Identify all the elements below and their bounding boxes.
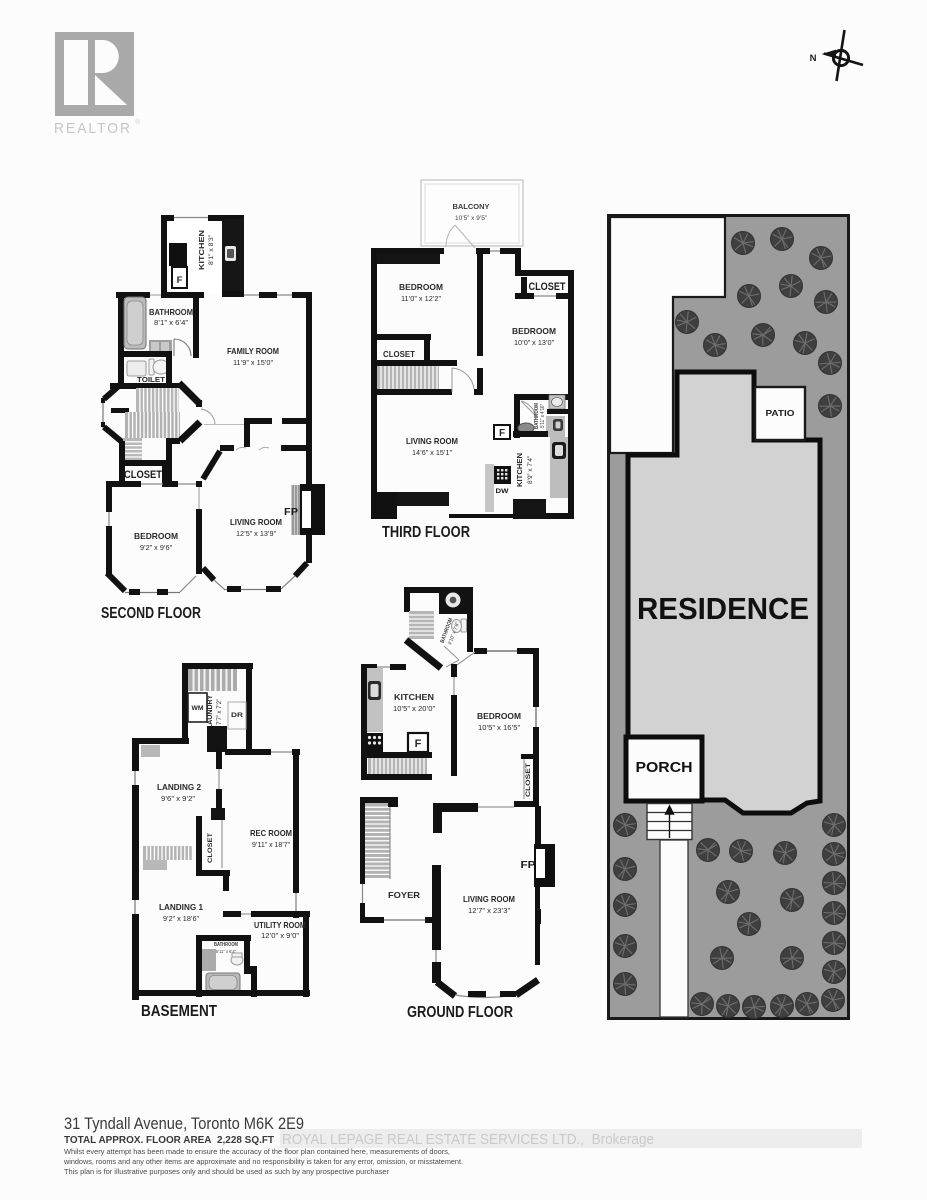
svg-text:KITCHEN: KITCHEN (515, 453, 524, 487)
svg-text:7’7” x 7’2”: 7’7” x 7’2” (217, 699, 223, 725)
svg-text:BASEMENT: BASEMENT (141, 1003, 217, 1020)
svg-text:F: F (415, 738, 422, 750)
svg-text:windows, rooms and any other i: windows, rooms and any other items are a… (63, 1157, 463, 1166)
svg-text:ROYAL LEPAGE REAL ESTATE SERVI: ROYAL LEPAGE REAL ESTATE SERVICES LTD., … (282, 1131, 654, 1148)
svg-text:FP: FP (521, 860, 536, 871)
svg-text:DW: DW (496, 488, 510, 495)
svg-text:LAUNDRY: LAUNDRY (207, 695, 214, 729)
svg-text:CLOSET: CLOSET (124, 469, 162, 481)
svg-text:BEDROOM: BEDROOM (512, 326, 556, 336)
svg-text:8’1” x 8’3”: 8’1” x 8’3” (209, 235, 215, 265)
svg-text:5’11” x 4’10”: 5’11” x 4’10” (540, 404, 546, 428)
svg-text:12’7” x 23’3”: 12’7” x 23’3” (468, 908, 511, 915)
svg-text:31 Tyndall Avenue, Toronto M6K: 31 Tyndall Avenue, Toronto M6K 2E9 (64, 1115, 304, 1133)
svg-text:REC ROOM: REC ROOM (250, 828, 292, 838)
svg-text:9’11” x 18’7”: 9’11” x 18’7” (252, 842, 291, 849)
svg-text:RESIDENCE: RESIDENCE (637, 591, 809, 626)
svg-text:CLOSET: CLOSET (529, 281, 566, 293)
svg-text:LANDING 1: LANDING 1 (159, 902, 203, 912)
svg-text:F: F (177, 275, 183, 286)
svg-text:GROUND FLOOR: GROUND FLOOR (407, 1004, 513, 1021)
svg-text:12’0” x 9’0”: 12’0” x 9’0” (261, 933, 300, 940)
svg-text:8’1” x 6’4”: 8’1” x 6’4” (154, 320, 189, 327)
svg-text:CLOSET: CLOSET (383, 349, 416, 359)
svg-text:BEDROOM: BEDROOM (134, 531, 178, 541)
svg-text:UTILITY ROOM: UTILITY ROOM (254, 920, 306, 930)
svg-text:11’9” x 15’0”: 11’9” x 15’0” (233, 360, 274, 367)
svg-text:THIRD FLOOR: THIRD FLOOR (382, 524, 470, 541)
svg-text:10’5” x 16’5”: 10’5” x 16’5” (478, 725, 521, 732)
svg-text:DR: DR (231, 712, 243, 719)
svg-text:F: F (499, 428, 505, 439)
svg-text:BEDROOM: BEDROOM (399, 282, 443, 292)
svg-text:LANDING 2: LANDING 2 (157, 782, 201, 792)
svg-text:9’2” x 18’6”: 9’2” x 18’6” (163, 916, 200, 923)
svg-text:11’0” x 12’2”: 11’0” x 12’2” (401, 296, 442, 303)
svg-text:9’2” x 9’6”: 9’2” x 9’6” (140, 545, 173, 552)
svg-text:WM: WM (192, 706, 204, 712)
svg-text:CLOSET: CLOSET (525, 763, 532, 797)
svg-text:LIVING ROOM: LIVING ROOM (230, 517, 282, 527)
svg-text:This plan is for illustrative: This plan is for illustrative purposes o… (64, 1167, 389, 1176)
svg-text:PATIO: PATIO (766, 408, 795, 418)
svg-text:BALCONY: BALCONY (453, 202, 490, 211)
svg-text:10’5” x 9’5”: 10’5” x 9’5” (455, 215, 487, 222)
svg-text:TOILET: TOILET (137, 375, 165, 384)
svg-text:Whilst every attempt has been: Whilst every attempt has been made to en… (64, 1147, 450, 1156)
svg-text:PORCH: PORCH (636, 760, 693, 776)
svg-text:FAMILY ROOM: FAMILY ROOM (227, 346, 279, 356)
svg-text:BEDROOM: BEDROOM (477, 711, 521, 721)
svg-text:BATHROOM: BATHROOM (214, 942, 238, 948)
svg-text:9’6” x 9’2”: 9’6” x 9’2” (161, 796, 196, 803)
svg-text:10’5” x 20’0”: 10’5” x 20’0” (393, 706, 436, 713)
svg-text:N: N (810, 53, 817, 64)
svg-text:SECOND FLOOR: SECOND FLOOR (101, 605, 201, 622)
svg-text:14’6” x 15’1”: 14’6” x 15’1” (412, 450, 453, 457)
svg-text:KITCHEN: KITCHEN (394, 692, 434, 702)
svg-text:KITCHEN: KITCHEN (197, 230, 206, 270)
svg-text:LIVING ROOM: LIVING ROOM (463, 894, 515, 904)
svg-text:BATHROOM: BATHROOM (149, 307, 193, 317)
svg-text:TOTAL APPROX. FLOOR AREA 2,22: TOTAL APPROX. FLOOR AREA 2,228 SQ.FT (64, 1134, 275, 1146)
svg-text:REALTOR: REALTOR (54, 120, 132, 137)
svg-text:®: ® (135, 118, 141, 126)
svg-text:12’5” x 13’9”: 12’5” x 13’9” (236, 531, 277, 538)
svg-text:FOYER: FOYER (388, 890, 420, 900)
svg-text:FP: FP (284, 507, 298, 518)
svg-text:10’0” x 13’0”: 10’0” x 13’0” (514, 340, 555, 347)
svg-text:LIVING ROOM: LIVING ROOM (406, 436, 458, 446)
svg-text:CLOSET: CLOSET (207, 833, 214, 863)
svg-text:8’9” x 7’4”: 8’9” x 7’4” (528, 456, 534, 484)
